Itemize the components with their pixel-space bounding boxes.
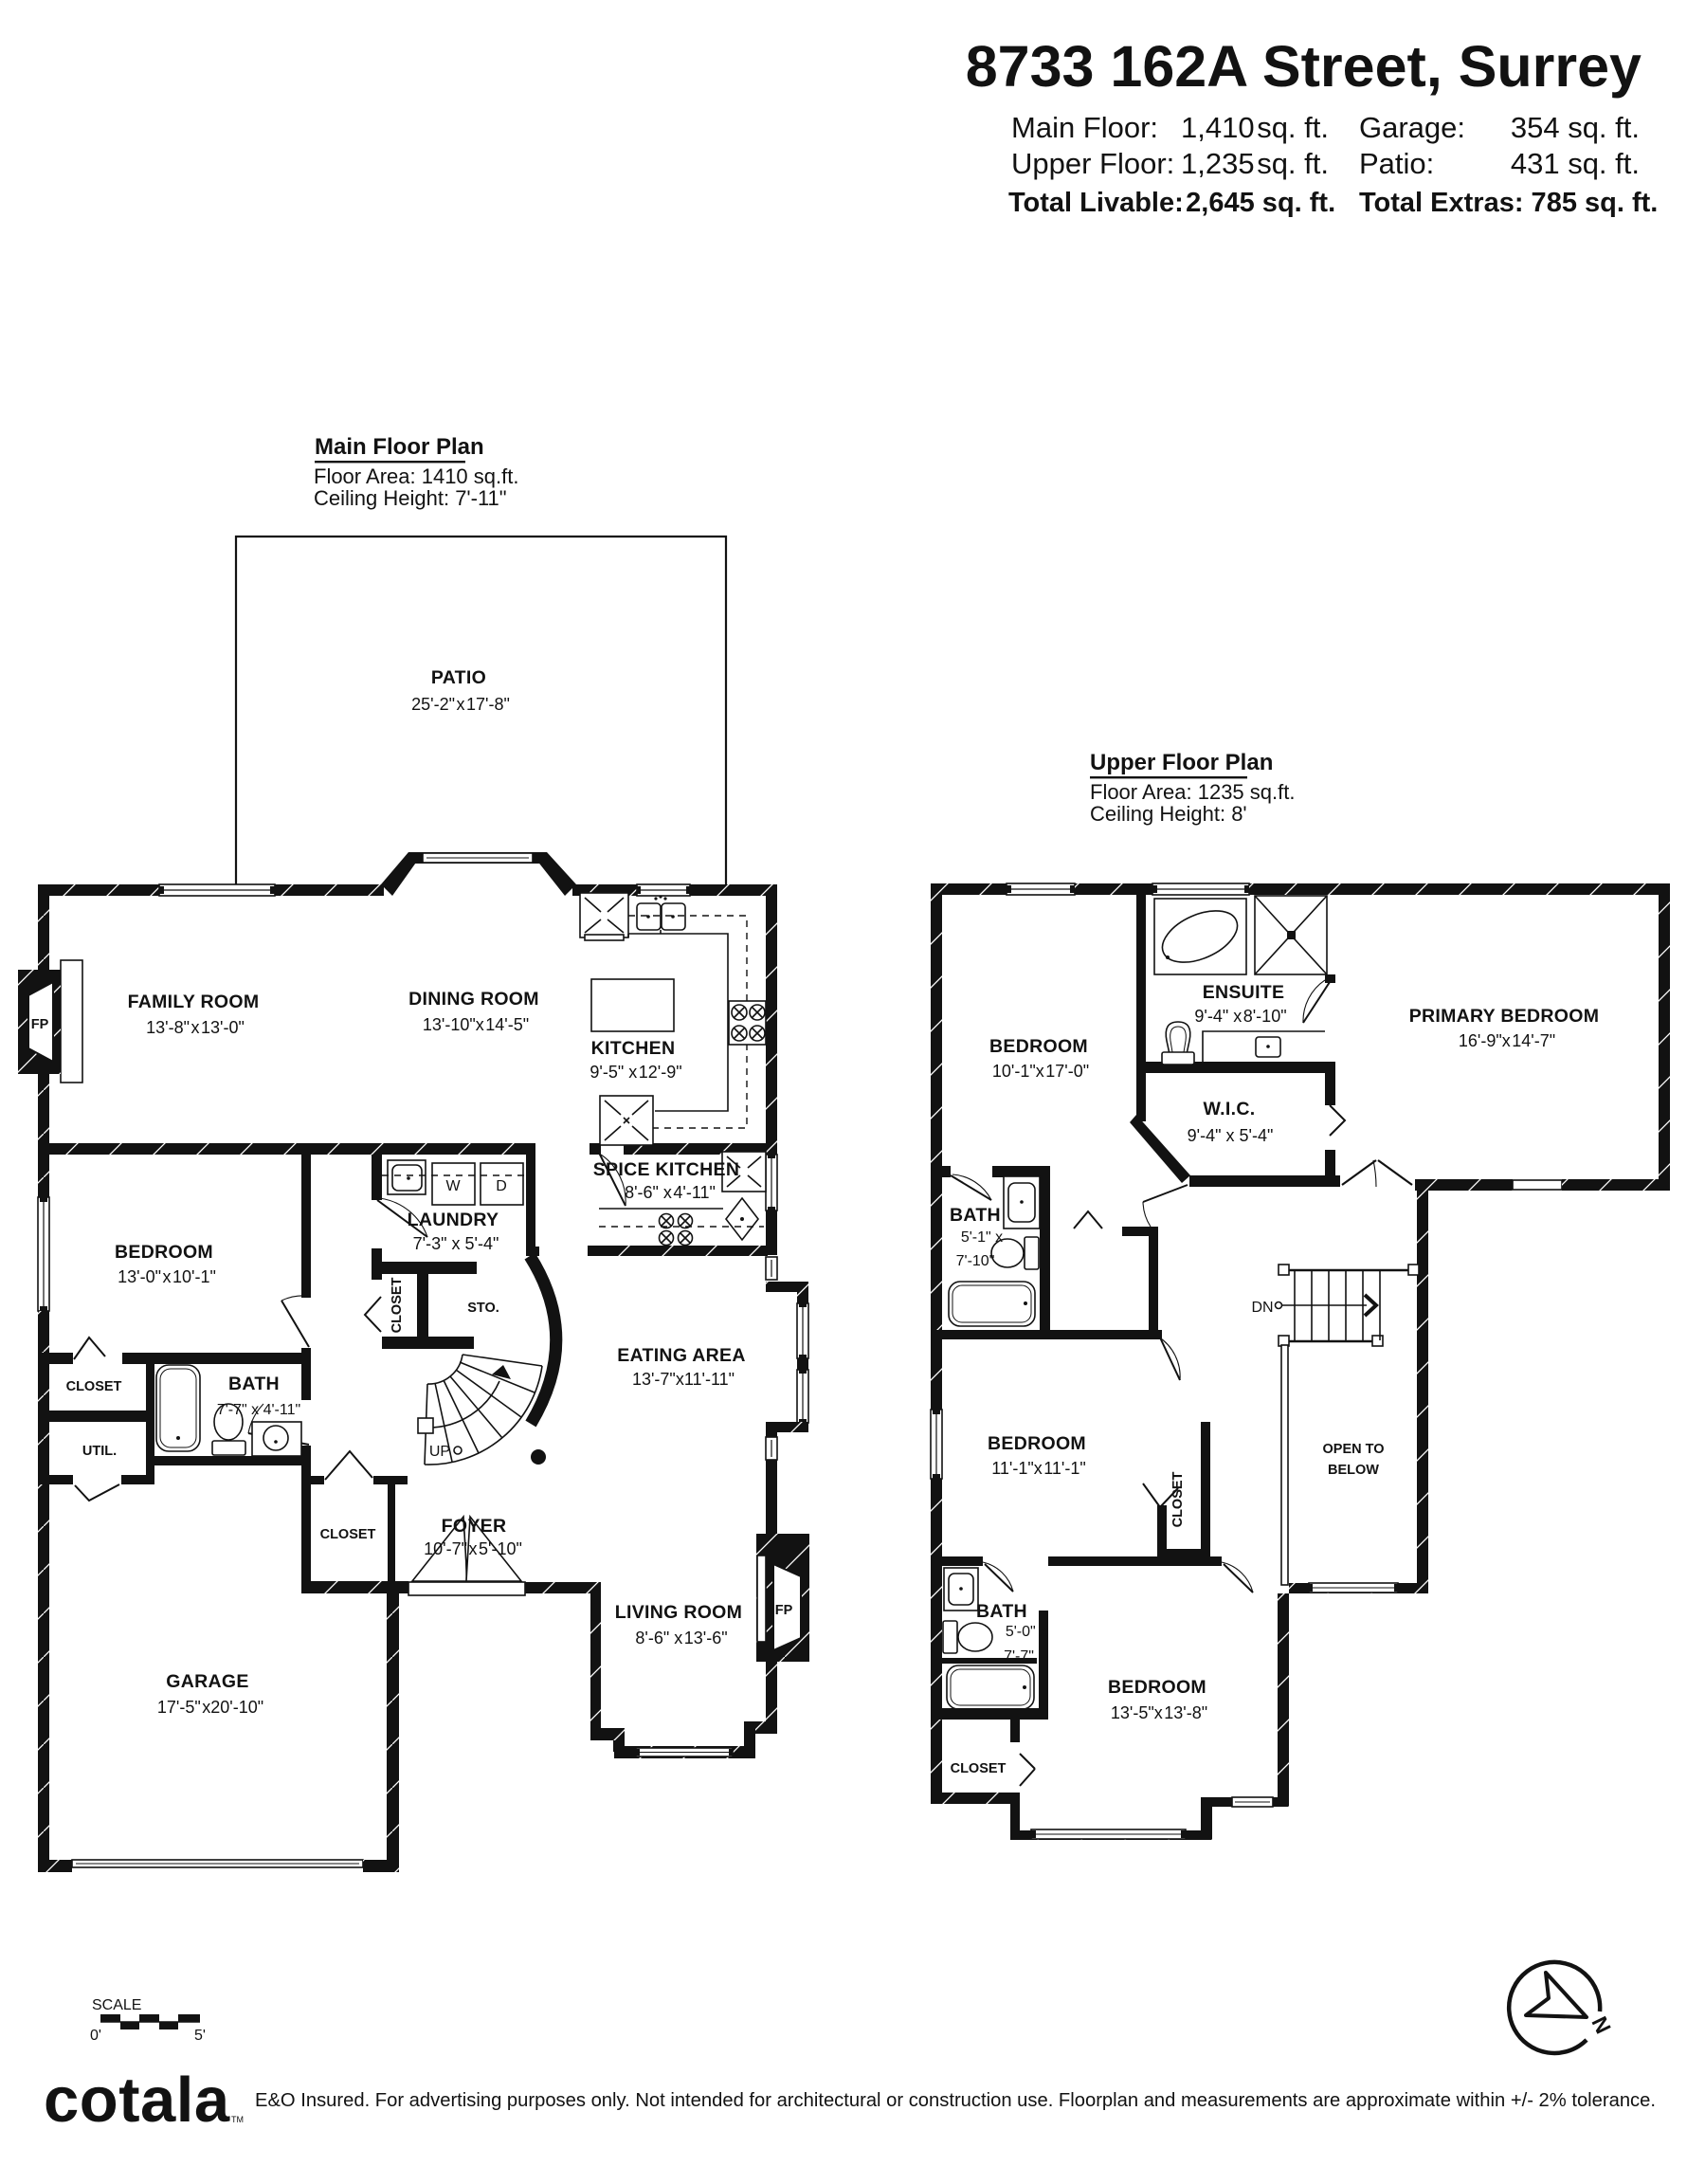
svg-text:CLOSET: CLOSET [951,1761,1007,1776]
svg-text:DN: DN [1251,1300,1273,1316]
svg-text:UTIL.: UTIL. [82,1444,117,1459]
svg-text:BATH: BATH [976,1601,1027,1622]
svg-text:CLOSET: CLOSET [66,1379,122,1394]
svg-text:9'-4" x 5'-4": 9'-4" x 5'-4" [1188,1126,1274,1145]
svg-text:13'-0" x 10'-1": 13'-0" x 10'-1" [118,1267,216,1286]
svg-text:FAMILY ROOM: FAMILY ROOM [128,992,260,1012]
svg-text:CLOSET: CLOSET [1170,1471,1186,1527]
svg-text:DINING ROOM: DINING ROOM [408,989,539,1010]
svg-text:BELOW: BELOW [1328,1463,1379,1478]
svg-text:UP: UP [429,1444,450,1460]
svg-text:BEDROOM: BEDROOM [988,1433,1086,1454]
svg-text:13'-8" x 13'-0": 13'-8" x 13'-0" [146,1018,245,1037]
svg-text:CLOSET: CLOSET [390,1277,405,1333]
svg-text:Floor Area: 1235 sq.ft.: Floor Area: 1235 sq.ft. [1090,780,1295,804]
svg-text:LIVING ROOM: LIVING ROOM [615,1602,742,1623]
svg-text:17'-5" x20'-10": 17'-5" x20'-10" [157,1698,263,1717]
svg-text:PATIO: PATIO [431,667,486,688]
svg-text:W: W [445,1178,461,1194]
svg-text:Ceiling Height: 7'-11": Ceiling Height: 7'-11" [314,486,507,510]
svg-text:EATING AREA: EATING AREA [617,1345,745,1366]
svg-text:Upper Floor Plan: Upper Floor Plan [1090,750,1273,775]
svg-text:16'-9"x 14'-7": 16'-9"x 14'-7" [1459,1031,1555,1050]
svg-text:SCALE: SCALE [92,1997,141,2013]
svg-text:1,235 sq. ft.: 1,235 sq. ft. [1181,147,1329,180]
svg-text:FP: FP [31,1017,49,1032]
svg-text:13'-7"x11'-11": 13'-7"x11'-11" [632,1370,735,1389]
svg-text:KITCHEN: KITCHEN [591,1038,676,1059]
svg-text:PRIMARY BEDROOM: PRIMARY BEDROOM [1409,1006,1600,1027]
svg-text:Main Floor:: Main Floor: [1011,111,1158,144]
svg-text:Total Livable: 2,645 sq. ft.: Total Livable: 2,645 sq. ft. [1008,188,1335,218]
svg-text:7'-10": 7'-10" [956,1253,995,1269]
svg-text:5': 5' [194,2028,206,2044]
svg-text:8733 162A Street, Surrey: 8733 162A Street, Surrey [966,34,1642,99]
svg-text:25'-2" x 17'-8": 25'-2" x 17'-8" [411,695,510,714]
svg-text:10'-1"x 17'-0": 10'-1"x 17'-0" [992,1062,1089,1081]
svg-text:13'-10"x 14'-5": 13'-10"x 14'-5" [423,1015,529,1034]
svg-text:7'-3" x 5'-4": 7'-3" x 5'-4" [413,1234,499,1253]
svg-text:FOYER: FOYER [442,1516,507,1537]
svg-text:FP: FP [775,1603,793,1618]
svg-text:ENSUITE: ENSUITE [1203,982,1285,1003]
svg-text:Floor Area: 1410 sq.ft.: Floor Area: 1410 sq.ft. [314,464,518,488]
svg-text:Upper Floor:: Upper Floor: [1011,147,1174,180]
svg-text:cotala: cotala [44,2065,230,2136]
svg-text:9'-5" x 12'-9": 9'-5" x 12'-9" [590,1063,681,1082]
svg-text:BATH: BATH [228,1374,280,1394]
svg-text:GARAGE: GARAGE [166,1671,248,1692]
svg-text:BATH: BATH [950,1205,1001,1226]
svg-text:CLOSET: CLOSET [320,1527,376,1542]
svg-text:1,410 sq. ft.: 1,410 sq. ft. [1181,111,1329,144]
svg-text:5'-1" x: 5'-1" x [961,1229,1003,1246]
svg-text:Garage:: Garage: [1359,111,1465,144]
svg-text:5'-0" x: 5'-0" x [1006,1624,1047,1640]
svg-text:SPICE KITCHEN: SPICE KITCHEN [593,1159,740,1180]
svg-text:BEDROOM: BEDROOM [1108,1677,1206,1698]
svg-text:BEDROOM: BEDROOM [989,1036,1088,1057]
svg-text:E&O Insured. For advertising p: E&O Insured. For advertising purposes on… [255,2090,1656,2111]
svg-text:7'-7": 7'-7" [1004,1648,1034,1665]
svg-text:0': 0' [90,2028,101,2044]
svg-text:13'-5"x 13'-8": 13'-5"x 13'-8" [1111,1703,1207,1722]
svg-text:8'-6" x 13'-6": 8'-6" x 13'-6" [635,1629,727,1647]
svg-text:354 sq. ft.: 354 sq. ft. [1511,111,1640,144]
svg-text:9'-4" x 8'-10": 9'-4" x 8'-10" [1194,1007,1286,1026]
svg-text:Main Floor Plan: Main Floor Plan [315,434,484,460]
svg-text:W.I.C.: W.I.C. [1204,1099,1256,1119]
svg-text:431 sq. ft.: 431 sq. ft. [1511,147,1640,180]
svg-text:LAUNDRY: LAUNDRY [408,1210,499,1230]
svg-text:8'-6" x 4'-11": 8'-6" x 4'-11" [625,1183,716,1202]
svg-text:STO.: STO. [467,1301,499,1316]
svg-text:OPEN TO: OPEN TO [1323,1442,1385,1457]
svg-text:10'-7" x 5'-10": 10'-7" x 5'-10" [424,1539,522,1558]
svg-text:D: D [496,1178,507,1194]
svg-text:Patio:: Patio: [1359,147,1434,180]
svg-text:TM: TM [231,2115,244,2124]
svg-text:11'-1"x 11'-1": 11'-1"x 11'-1" [991,1459,1086,1478]
svg-text:Total Extras: 785 sq. ft.: Total Extras: 785 sq. ft. [1359,188,1658,218]
svg-text:Ceiling Height: 8': Ceiling Height: 8' [1090,802,1247,826]
svg-text:7'-7" x 4'-11": 7'-7" x 4'-11" [217,1402,300,1418]
svg-text:BEDROOM: BEDROOM [115,1242,213,1263]
